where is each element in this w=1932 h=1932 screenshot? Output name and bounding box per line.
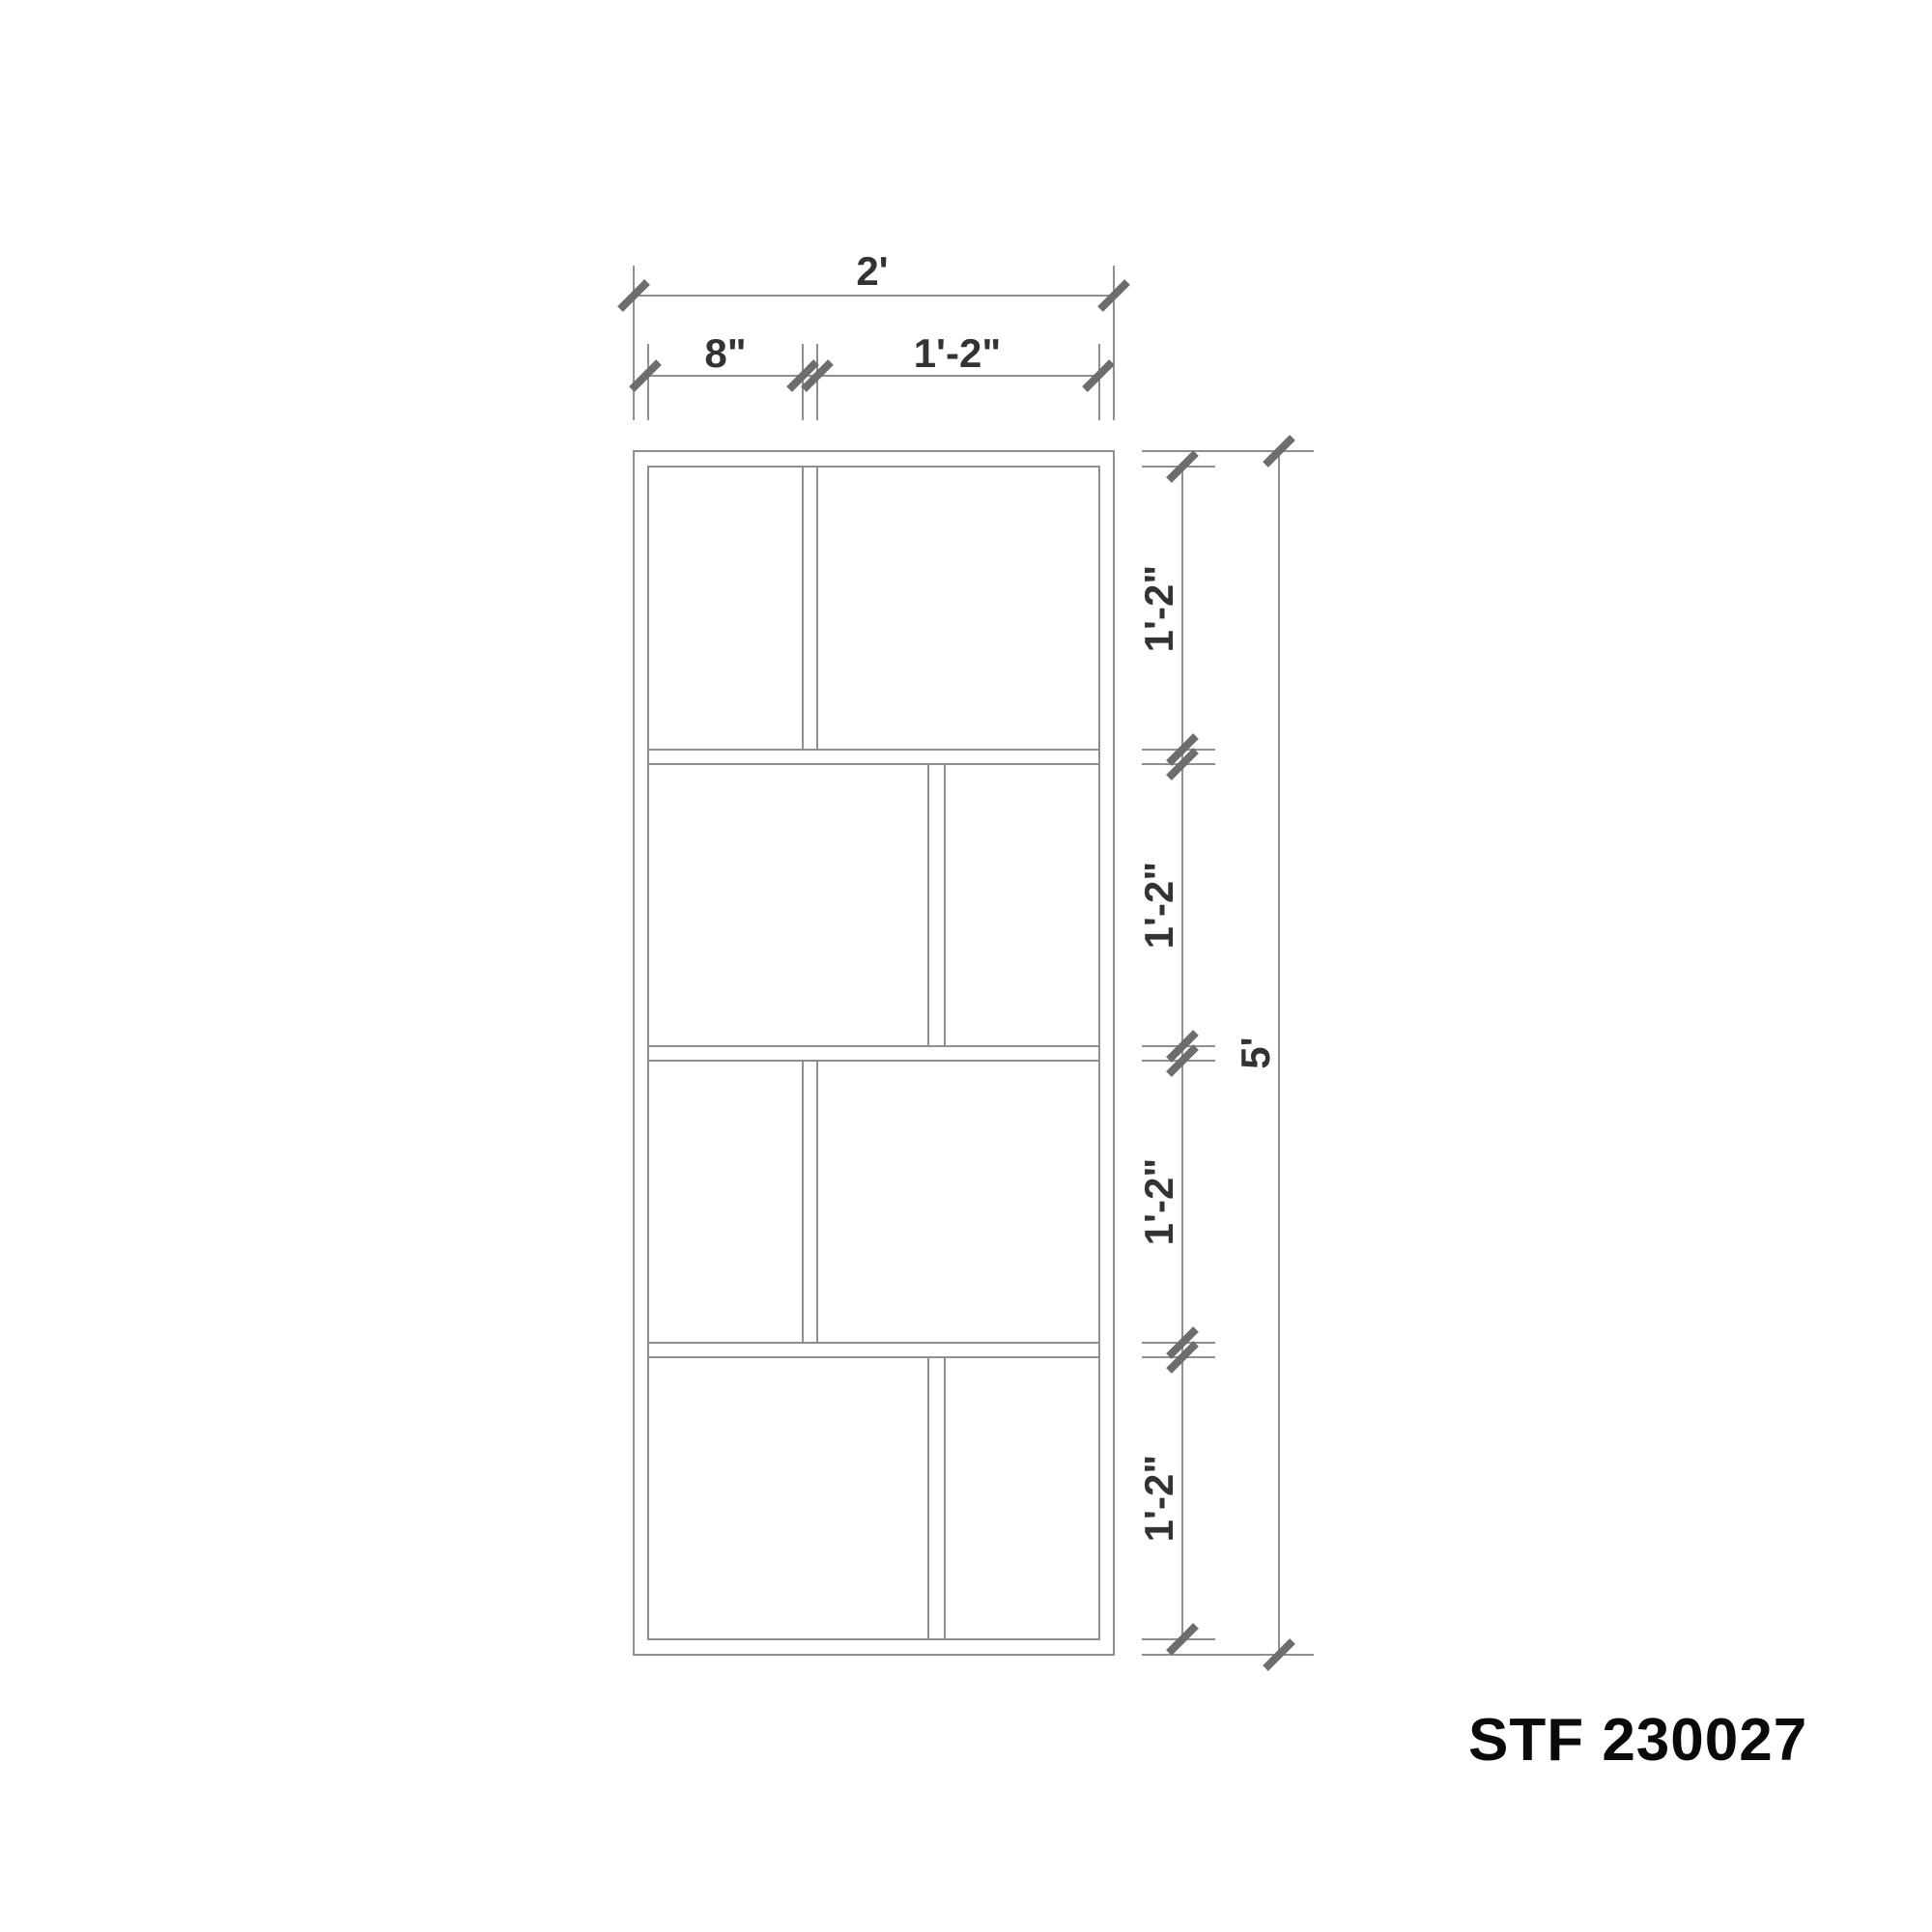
dim-row3-label: 1'-2" <box>1136 1158 1181 1246</box>
dim-overall-width-label: 2' <box>856 248 888 294</box>
dim-8in-label: 8" <box>704 330 746 376</box>
dim-row2-label: 1'-2" <box>1136 862 1181 950</box>
shelf-frame <box>634 451 1114 1655</box>
dim-1ft2in-top-label: 1'-2" <box>914 330 1002 376</box>
row-dividers <box>803 467 945 1639</box>
drawing-canvas: 2' 8" 1'-2" 1'-2" 1'-2" 1'-2" 1'-2" 5' S… <box>0 0 1932 1932</box>
frame-outer-outline <box>634 451 1114 1655</box>
product-code: STF 230027 <box>1468 1707 1807 1774</box>
dim-overall-height-label: 5' <box>1233 1037 1278 1068</box>
tick-marks <box>620 282 1293 1668</box>
shelf-elevation-drawing: 2' 8" 1'-2" 1'-2" 1'-2" 1'-2" 1'-2" 5' S… <box>0 0 1932 1932</box>
shelf-boards <box>648 750 1099 1357</box>
dim-row1-label: 1'-2" <box>1136 565 1181 653</box>
dimension-lines <box>634 296 1279 1655</box>
dim-row4-label: 1'-2" <box>1136 1455 1181 1543</box>
frame-inner-outline <box>648 467 1099 1639</box>
